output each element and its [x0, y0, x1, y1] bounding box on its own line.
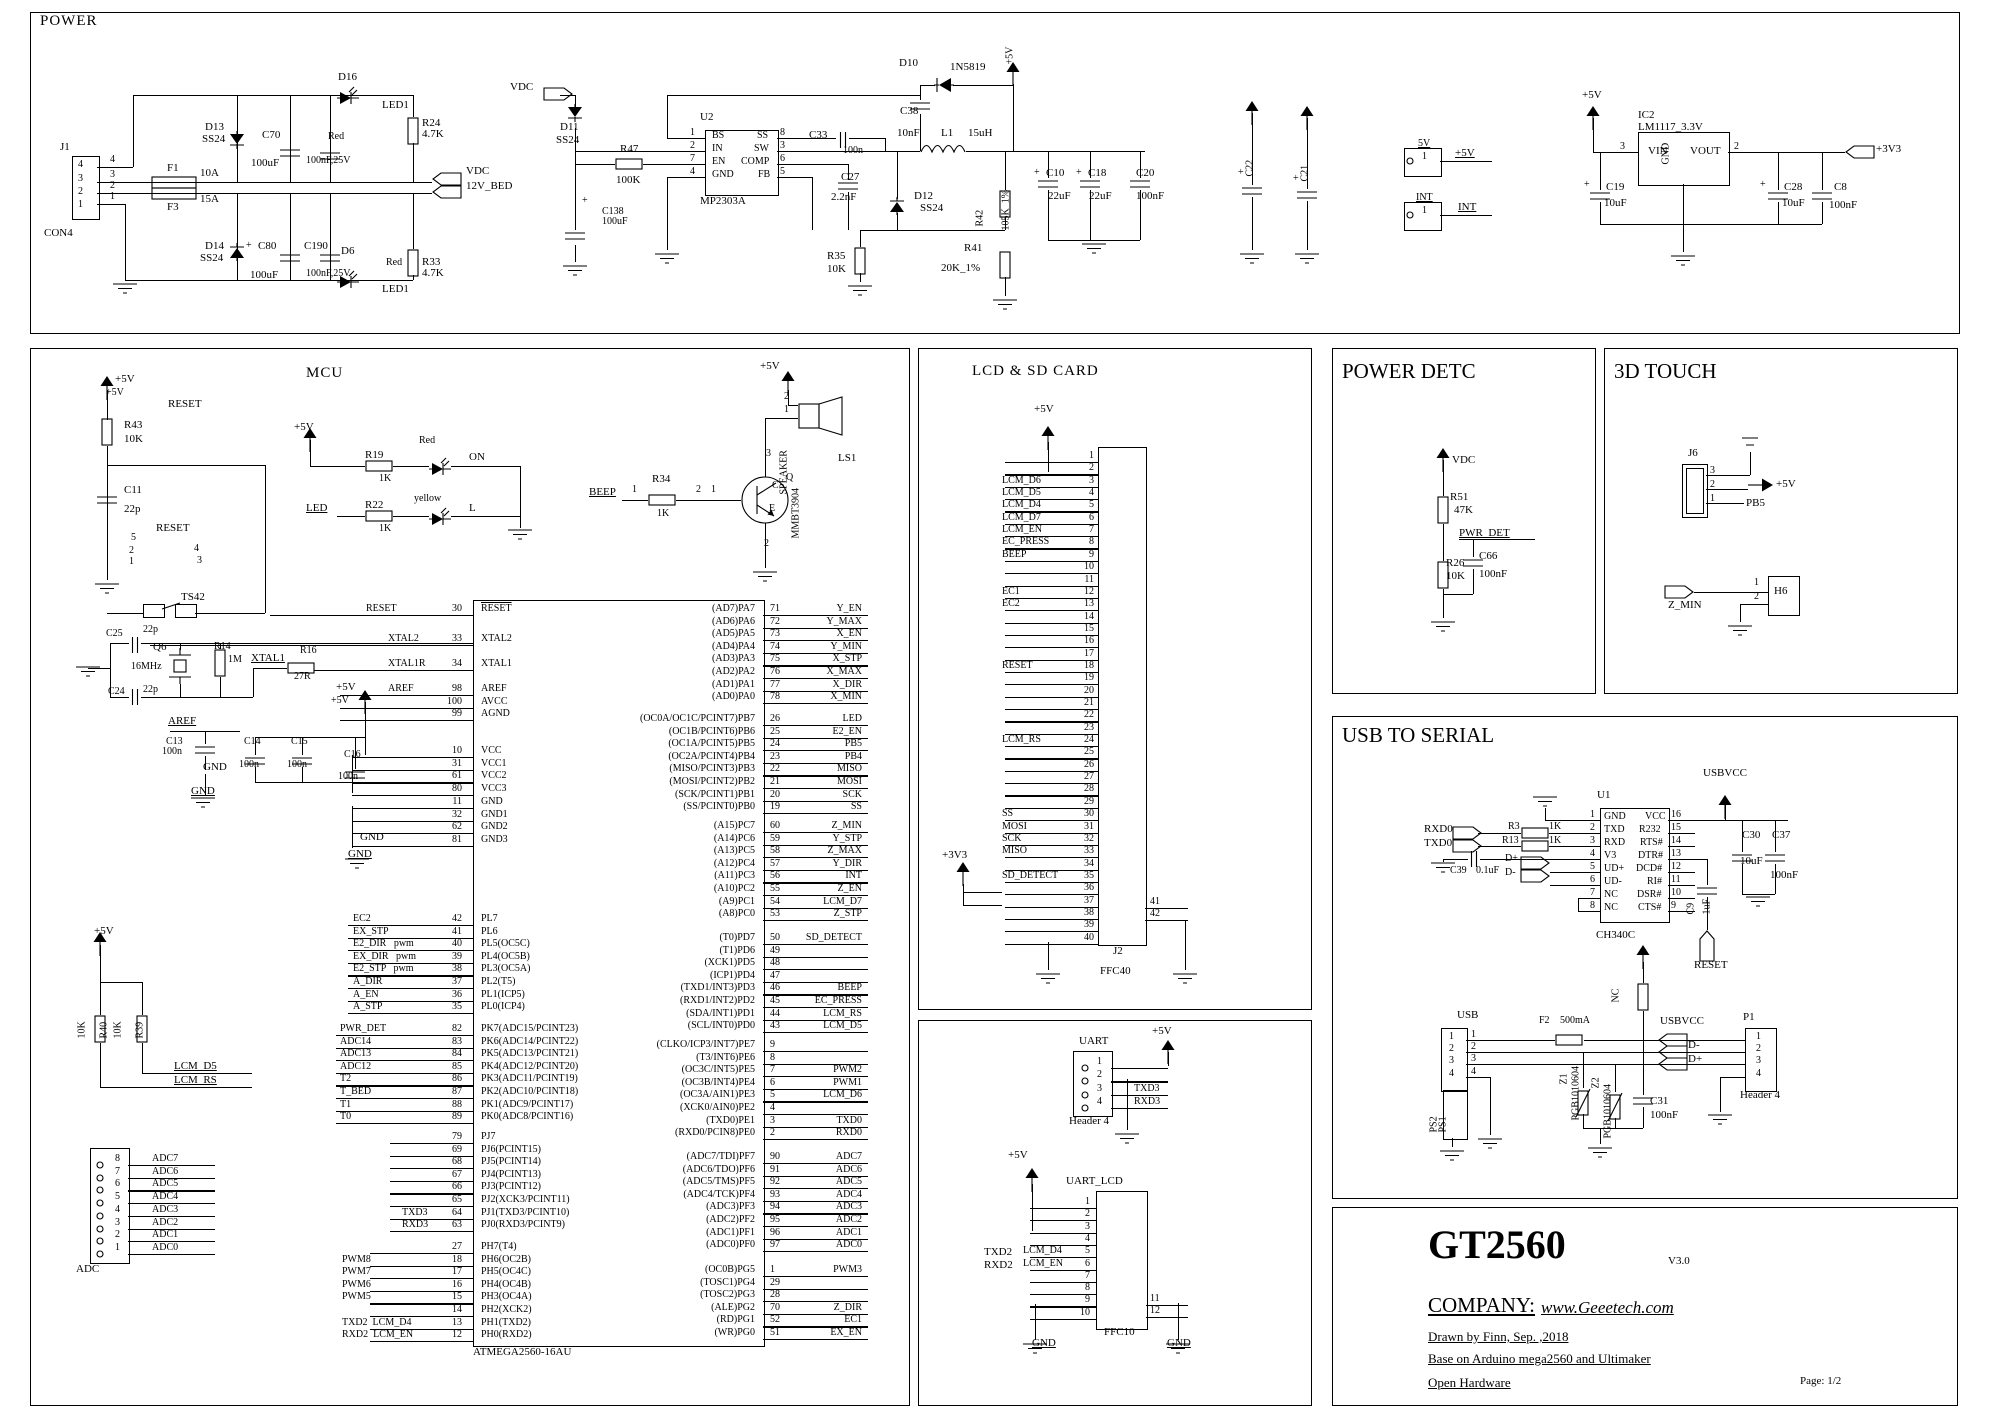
pin-number: 74 [770, 642, 780, 653]
wire [290, 193, 291, 280]
gnd-symbol [112, 283, 138, 295]
net-label: TXD2 LCM_D4 [342, 1318, 411, 1329]
net-label: TXD0 [836, 1116, 862, 1127]
schematic-label: 1 [1756, 1032, 1761, 1043]
schematic-label: FFC10 [1104, 1327, 1135, 1339]
schematic-label: BEEP [589, 487, 616, 499]
pin-name: PH4(OC4B) [481, 1280, 531, 1291]
pin-number: 55 [770, 884, 780, 895]
j6-inner-box [1686, 468, 1704, 514]
pin-name: AGND [481, 709, 510, 720]
schematic-label: V3 [1604, 851, 1616, 862]
pin-number: 94 [770, 1202, 780, 1213]
pin-number: 59 [770, 834, 780, 845]
schematic-label: GND [1662, 143, 1673, 165]
schematic-label: 1K [379, 474, 391, 485]
wire [1600, 224, 1822, 225]
pin-number: 29 [1084, 797, 1094, 808]
pin-name: PJ1(TXD3/PCINT10) [481, 1208, 569, 1219]
schematic-label: FFC40 [1100, 966, 1131, 978]
wire [393, 516, 429, 517]
pin-name: (T1)PD6 [719, 946, 755, 957]
pin-number: 9 [1089, 550, 1094, 561]
wire [1578, 898, 1600, 899]
pin-number: 2 [770, 1128, 775, 1139]
ledr-symbol [429, 507, 451, 525]
net-label: SCK [843, 790, 862, 801]
cap-symbol [280, 147, 300, 159]
pin-number: 39 [452, 952, 462, 963]
schematic-label: 8 [1590, 901, 1595, 912]
schematic-label: J1 [60, 142, 70, 154]
schematic-label: 2 [1754, 592, 1759, 603]
schematic-label: 4.7K [422, 129, 444, 141]
pin-name: (RD)PG1 [717, 1315, 755, 1326]
wire [575, 151, 705, 152]
schematic-label: 10K [827, 264, 846, 276]
schematic-label: GND [203, 762, 227, 774]
batt-symbol [1740, 436, 1760, 450]
wire [180, 684, 181, 697]
net-label: LCM_D6 [1002, 476, 1041, 487]
pin-name: PL6 [481, 927, 498, 938]
section-title-power-detc: POWER DETC [1342, 360, 1476, 382]
schematic-label: +5V [336, 682, 356, 694]
pin-number: 8 [770, 1053, 775, 1064]
pwr-symbol [1586, 106, 1600, 130]
pin-number: 42 [1150, 909, 1160, 920]
schematic-label: +5V [331, 696, 349, 707]
wire [1615, 1064, 1616, 1092]
flagr-symbol [543, 87, 573, 101]
schematic-label: 3 [1471, 1054, 1476, 1065]
schematic-label: 1K [379, 524, 391, 535]
resh-symbol [365, 460, 393, 472]
pin-number: 32 [452, 810, 462, 821]
schematic-label: AREF [168, 716, 196, 728]
circ-symbol [1406, 211, 1414, 219]
wire [1600, 152, 1601, 190]
pin-name: PK0(ADC8/PCINT16) [481, 1112, 573, 1123]
net-label: RESET [366, 604, 397, 615]
pin-name: (A11)PC3 [714, 871, 755, 882]
ledr-symbol [429, 457, 451, 475]
net-label: LED [843, 714, 862, 725]
net-label: A_STP [353, 1002, 382, 1013]
schematic-label: TS42 [181, 592, 205, 604]
schematic-label: D11 [560, 122, 579, 134]
pin-number: 80 [452, 784, 462, 795]
pin-number: 86 [452, 1074, 462, 1085]
schematic-label: USBVCC [1660, 1016, 1704, 1028]
pwr-symbol [1436, 448, 1450, 472]
schematic-label: 2 [696, 485, 701, 496]
pin-number: 53 [770, 909, 780, 920]
pin-number: 13 [1084, 599, 1094, 610]
pin-number: 4 [1097, 1097, 1102, 1108]
schematic-label: 7 [1590, 888, 1595, 899]
schematic-label: UART_LCD [1066, 1176, 1123, 1188]
wire [100, 1043, 101, 1087]
wire [97, 204, 125, 205]
net-label: ADC6 [152, 1167, 178, 1178]
schematic-label: 1 [690, 128, 695, 139]
wire [352, 806, 353, 848]
schematic-label: SS24 [202, 134, 225, 146]
pin-number: 25 [1084, 747, 1094, 758]
schematic-label: IN [712, 144, 723, 155]
net-label: Z_MAX [828, 846, 862, 857]
pin-name: (A12)PC4 [714, 859, 755, 870]
net-label: Y_MAX [826, 617, 862, 628]
schematic-label: + [1238, 168, 1244, 179]
pin-name: (AD1)PA1 [712, 680, 755, 691]
schematic-label: 1 [1710, 494, 1715, 505]
net-label: ADC5 [152, 1179, 178, 1190]
pin-name: (XCK1)PD5 [704, 958, 755, 969]
pin-number: 44 [770, 1009, 780, 1020]
schematic-label: 2 [1710, 480, 1715, 491]
wire [963, 892, 1002, 893]
pwrr-symbol [1748, 478, 1774, 492]
wire [1578, 898, 1579, 911]
pin-name: PH3(OC4A) [481, 1292, 532, 1303]
pin-number: 36 [452, 990, 462, 1001]
flagl-symbol [432, 185, 462, 199]
pin-number: 31 [452, 759, 462, 770]
pin-name: (CLKO/ICP3/INT7)PE7 [657, 1040, 755, 1051]
schematic-label: + [582, 196, 588, 207]
schematic-label: LED1 [382, 100, 409, 112]
schematic-label: 4.7K [422, 268, 444, 280]
pin-circle-symbol [1081, 1104, 1089, 1112]
schematic-label: UD- [1604, 877, 1622, 888]
schematic-label: R42 [976, 210, 987, 227]
pin-name: GND2 [481, 822, 508, 833]
cap-symbol [1080, 178, 1100, 190]
net-label: T2 [340, 1074, 351, 1085]
schematic-label: 3 [780, 141, 785, 152]
gnd-symbol [1727, 625, 1753, 637]
schematic-label: 2 [764, 539, 769, 550]
schematic-canvas: POWERJ1CON443214321F110AF315AD13SS24C701… [0, 0, 2000, 1417]
wire [520, 466, 521, 516]
schematic-label: 4 [78, 160, 83, 171]
pin-circle-symbol [1081, 1077, 1089, 1085]
schematic-label: 10uF [1782, 198, 1805, 210]
res-symbol [407, 249, 419, 277]
pin-name: PH1(TXD2) [481, 1318, 531, 1329]
schematic-label: R41 [964, 243, 982, 255]
schematic-label: 15A [200, 194, 219, 206]
wire [643, 164, 705, 165]
schematic-label: Z1 [1560, 1073, 1571, 1084]
schematic-label: D10 [899, 58, 918, 70]
wire [150, 645, 473, 646]
wire [290, 95, 291, 182]
pin-number: 10 [1084, 562, 1094, 573]
pin-name: (A15)PC7 [714, 821, 755, 832]
flagl-symbol [1845, 145, 1875, 159]
wire [253, 668, 254, 697]
schematic-label: DSR# [1637, 890, 1661, 901]
net-label: TXD3 [1134, 1084, 1160, 1095]
pin-number: 7 [1089, 525, 1094, 536]
pin-name: (AD2)PA2 [712, 667, 755, 678]
pin-name: (TOSC2)PG3 [700, 1290, 755, 1301]
schematic-label: +5V [1006, 47, 1017, 65]
schematic-label: SS24 [200, 253, 223, 265]
wire [1740, 604, 1768, 605]
pin-number: 11 [1084, 575, 1094, 586]
wire [1005, 151, 1006, 190]
net-label: ADC0 [836, 1240, 862, 1251]
schematic-label: SS [757, 131, 768, 142]
schematic-label: 100K [616, 175, 640, 187]
pin-number: 99 [452, 709, 462, 720]
schematic-label: CON4 [44, 228, 73, 240]
schematic-label: Header 4 [1069, 1116, 1109, 1128]
schematic-label: 105K_1% [1002, 190, 1013, 231]
pin-name: (OC3C/INT5)PE5 [682, 1065, 755, 1076]
pin-name: (OC3A/AIN1)PE3 [680, 1090, 755, 1101]
wire [1048, 240, 1140, 241]
drawn-by: Drawn by Finn, Sep. ,2018 [1428, 1330, 1568, 1344]
pin-number: 26 [770, 714, 780, 725]
schematic-label: VDC [466, 166, 489, 178]
schematic-label: TXD0 [1424, 838, 1452, 850]
schematic-label: 1 [632, 485, 637, 496]
schematic-label: 4 [1449, 1069, 1454, 1080]
net-label: PB4 [845, 752, 862, 763]
schematic-label: + [1034, 168, 1040, 179]
wire [348, 1013, 473, 1014]
wire [1452, 1138, 1453, 1147]
gnd-symbol [1439, 1150, 1465, 1162]
schematic-label: 4 [690, 167, 695, 178]
wire [237, 193, 238, 280]
pin-number: 14 [1084, 612, 1094, 623]
schematic-label: XTAL1 [251, 653, 285, 665]
schematic-label: 4 [1756, 1069, 1761, 1080]
wire [1720, 1077, 1721, 1112]
pin-number: 35 [1084, 871, 1094, 882]
net-label: RESET [1002, 661, 1033, 672]
pin-number: 36 [1084, 883, 1094, 894]
pin-number: 51 [770, 1328, 780, 1339]
wire [1443, 524, 1444, 561]
pin-number: 34 [452, 659, 462, 670]
schematic-label: 2 [784, 392, 789, 403]
res-symbol [854, 247, 866, 275]
resh-symbol [365, 510, 393, 522]
pin-name: PH6(OC2B) [481, 1255, 531, 1266]
pin-name: PK5(ADC13/PCINT21) [481, 1049, 578, 1060]
schematic-label: + [246, 241, 252, 252]
schematic-label: 3 [1756, 1056, 1761, 1067]
pin-number: 87 [452, 1087, 462, 1098]
schematic-label: 1 [129, 557, 134, 568]
pin-name: (ADC7/TDI)PF7 [687, 1152, 755, 1163]
gnd-symbol [1707, 1114, 1733, 1126]
wire [195, 613, 265, 614]
fuse-symbol [151, 187, 197, 200]
schematic-label: F2 [1539, 1016, 1550, 1027]
schematic-label: 100uF [251, 158, 279, 170]
net-label: LCM_D7 [823, 897, 862, 908]
wire [390, 1231, 473, 1232]
spk-symbol [798, 396, 844, 436]
wire [1742, 894, 1775, 895]
cap-symbol [565, 230, 585, 242]
schematic-label: GND [1167, 1338, 1191, 1350]
schematic-label: TXD [1604, 825, 1625, 836]
pwr-symbol [956, 862, 970, 886]
schematic-label: D- [1688, 1040, 1700, 1052]
wire [1013, 84, 1014, 151]
pin-name: (ICP1)PD4 [710, 971, 755, 982]
schematic-label: 1K [1549, 822, 1561, 833]
pin-number: 3 [1097, 1084, 1102, 1095]
schematic-label: 1 [1471, 1030, 1476, 1041]
gnd-symbol [992, 299, 1018, 311]
pin-number: 8 [115, 1154, 120, 1165]
cap-symbol [1038, 178, 1058, 190]
wire [205, 731, 206, 744]
net-label: Y_STP [833, 834, 862, 845]
pin-number: 7 [770, 1065, 775, 1076]
pin-number: 24 [770, 739, 780, 750]
net-label: LCM_D6 [823, 1090, 862, 1101]
pwr-symbol [1300, 106, 1314, 130]
net-label: X_STP [833, 654, 862, 665]
section-title-3d-touch: 3D TOUCH [1614, 360, 1717, 382]
net-label: Y_MIN [830, 642, 862, 653]
wire [1307, 201, 1308, 250]
wire [1778, 152, 1779, 190]
wire [763, 920, 868, 921]
wire [963, 905, 1002, 906]
schematic-label: + [1760, 180, 1766, 191]
schematic-label: 6 [780, 154, 785, 165]
pin-name: PJ6(PCINT15) [481, 1145, 541, 1156]
schematic-label: D+ [1505, 854, 1518, 865]
pin-number: 68 [452, 1157, 462, 1168]
schematic-label: 15 [1671, 823, 1681, 834]
pin-number: 22 [1084, 710, 1094, 721]
pin-number: 62 [452, 822, 462, 833]
schematic-label: 11 [1671, 875, 1681, 886]
schematic-label: RTS# [1640, 838, 1663, 849]
schematic-label: C38 [900, 106, 918, 118]
pin-name: PL2(T5) [481, 977, 515, 988]
pin-number: 10 [452, 746, 462, 757]
net-label: SD_DETECT [1002, 871, 1058, 882]
schematic-label: R35 [827, 251, 845, 263]
wire [1750, 452, 1751, 475]
pin-name: (ADC2)PF2 [706, 1215, 755, 1226]
pin-name: (SCL/INT0)PD0 [688, 1021, 755, 1032]
schematic-label: 100n [338, 772, 358, 783]
gnd-symbol [1587, 1147, 1613, 1159]
pin-number: 1 [770, 1265, 775, 1276]
cap-symbol [1242, 185, 1262, 197]
schematic-label: 1 [1422, 206, 1427, 217]
schematic-label: 1 [1449, 1032, 1454, 1043]
flagu-symbol [1699, 930, 1715, 962]
wire [860, 230, 1005, 231]
schematic-label: R22 [365, 500, 383, 512]
pin-number: 30 [452, 604, 462, 615]
pwr-symbol [1161, 1040, 1175, 1064]
pin-number: 25 [770, 727, 780, 738]
pin-number: 23 [770, 752, 780, 763]
section-title-mcu: MCU [306, 366, 343, 382]
gnd-symbol [1430, 621, 1456, 633]
wire [265, 465, 266, 613]
wire [142, 1043, 143, 1073]
schematic-label: D13 [205, 122, 224, 134]
cap-symbol [97, 494, 117, 506]
wire [100, 1087, 252, 1088]
open-hardware: Open Hardware [1428, 1376, 1511, 1390]
schematic-label: R3 [1508, 822, 1520, 833]
wire [575, 164, 615, 165]
schematic-label: 6 [1590, 875, 1595, 886]
pin-number: 76 [770, 667, 780, 678]
pin-number: 11 [1150, 1294, 1160, 1305]
pin-number: 40 [1084, 933, 1094, 944]
wire [765, 418, 798, 419]
net-label: LCM_EN [1023, 1259, 1063, 1270]
wire [253, 668, 287, 669]
schematic-label: C8 [1834, 182, 1847, 194]
schematic-label: C66 [1479, 551, 1497, 563]
wire [141, 643, 473, 644]
schematic-label: 10A [200, 168, 219, 180]
net-label: EC_PRESS [1002, 537, 1049, 548]
resh-symbol [1555, 1034, 1583, 1046]
schematic-label: GND [1604, 812, 1626, 823]
net-label: AREF [388, 684, 414, 695]
wire [97, 182, 152, 183]
p1-header-box [1745, 1028, 1777, 1092]
pin-number: 3 [115, 1218, 120, 1229]
wire [777, 164, 848, 165]
schematic-label: 22uF [1089, 191, 1112, 203]
pin-number: 21 [1084, 698, 1094, 709]
schematic-label: 3 [766, 449, 771, 460]
schematic-label: 15uH [968, 128, 992, 140]
pin-name: XTAL1 [481, 659, 512, 670]
pin-number: 58 [770, 846, 780, 857]
wire [1035, 1304, 1036, 1340]
schematic-label: Header 4 [1740, 1090, 1780, 1102]
pin-number: 5 [115, 1192, 120, 1203]
wire [1740, 604, 1741, 622]
cap-symbol [1697, 885, 1717, 897]
net-label: MISO [837, 764, 862, 775]
net-label: BEEP [838, 983, 862, 994]
cap-symbol [1130, 178, 1150, 190]
company-url: www.Geeetech.com [1541, 1299, 1674, 1317]
pin-name: (AD0)PA0 [712, 692, 755, 703]
schematic-label: 1 [78, 200, 83, 211]
net-label: X_MAX [826, 667, 862, 678]
pin-number: 96 [770, 1228, 780, 1239]
pin-circle-symbol [96, 1212, 104, 1220]
schematic-label: 1K [657, 509, 669, 520]
